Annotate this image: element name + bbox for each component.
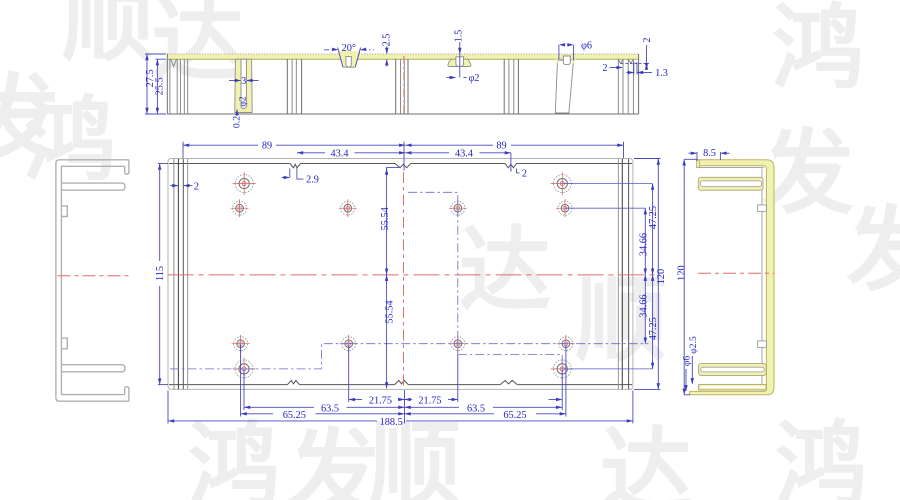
svg-text:3: 3 bbox=[241, 76, 246, 87]
svg-text:2: 2 bbox=[642, 38, 653, 43]
svg-text:20°: 20° bbox=[342, 43, 356, 54]
svg-text:达: 达 bbox=[152, 0, 244, 92]
svg-text:25.5: 25.5 bbox=[155, 77, 166, 95]
svg-text:2: 2 bbox=[194, 181, 199, 192]
svg-text:φ6: φ6 bbox=[581, 40, 592, 51]
svg-text:21.75: 21.75 bbox=[418, 396, 441, 407]
svg-text:1.3: 1.3 bbox=[655, 68, 668, 79]
svg-text:47.25: 47.25 bbox=[648, 206, 659, 229]
svg-text:φ2: φ2 bbox=[239, 96, 249, 106]
svg-text:0.2: 0.2 bbox=[232, 116, 243, 128]
svg-text:89: 89 bbox=[262, 141, 272, 152]
svg-text:65.25: 65.25 bbox=[503, 410, 526, 421]
svg-text:188.5: 188.5 bbox=[380, 417, 403, 428]
svg-text:47.25: 47.25 bbox=[648, 317, 659, 340]
svg-text:63.5: 63.5 bbox=[321, 403, 339, 414]
svg-text:43.4: 43.4 bbox=[330, 148, 348, 159]
svg-text:发: 发 bbox=[288, 423, 380, 500]
svg-text:鸿: 鸿 bbox=[775, 415, 867, 500]
svg-text:达: 达 bbox=[459, 220, 551, 322]
svg-text:达: 达 bbox=[600, 421, 692, 500]
svg-text:34.66: 34.66 bbox=[639, 294, 650, 317]
svg-text:65.25: 65.25 bbox=[283, 410, 306, 421]
svg-text:2: 2 bbox=[522, 169, 527, 180]
svg-text:发: 发 bbox=[0, 68, 60, 170]
svg-text:115: 115 bbox=[155, 266, 166, 281]
svg-text:鸿: 鸿 bbox=[772, 0, 864, 100]
svg-text:φ6: φ6 bbox=[682, 356, 693, 367]
svg-text:120: 120 bbox=[677, 265, 688, 280]
svg-text:43.4: 43.4 bbox=[455, 148, 473, 159]
svg-text:发: 发 bbox=[846, 200, 900, 302]
svg-text:21.75: 21.75 bbox=[369, 396, 392, 407]
svg-text:鸿: 鸿 bbox=[188, 416, 280, 500]
svg-text:φ2: φ2 bbox=[469, 73, 480, 84]
svg-text:2.5: 2.5 bbox=[381, 34, 392, 47]
svg-text:1.5: 1.5 bbox=[454, 30, 465, 43]
svg-text:63.5: 63.5 bbox=[467, 403, 485, 414]
svg-text:φ2.5: φ2.5 bbox=[688, 336, 699, 354]
svg-text:89: 89 bbox=[496, 141, 506, 152]
svg-text:发: 发 bbox=[762, 123, 854, 225]
svg-text:2: 2 bbox=[603, 63, 608, 74]
svg-text:34.66: 34.66 bbox=[639, 233, 650, 256]
svg-text:8.5: 8.5 bbox=[703, 148, 716, 159]
svg-text:顺: 顺 bbox=[62, 0, 154, 72]
svg-text:55.54: 55.54 bbox=[385, 300, 396, 323]
svg-text:2.9: 2.9 bbox=[306, 175, 319, 186]
svg-text:55.54: 55.54 bbox=[380, 207, 391, 230]
svg-text:120: 120 bbox=[656, 269, 667, 284]
